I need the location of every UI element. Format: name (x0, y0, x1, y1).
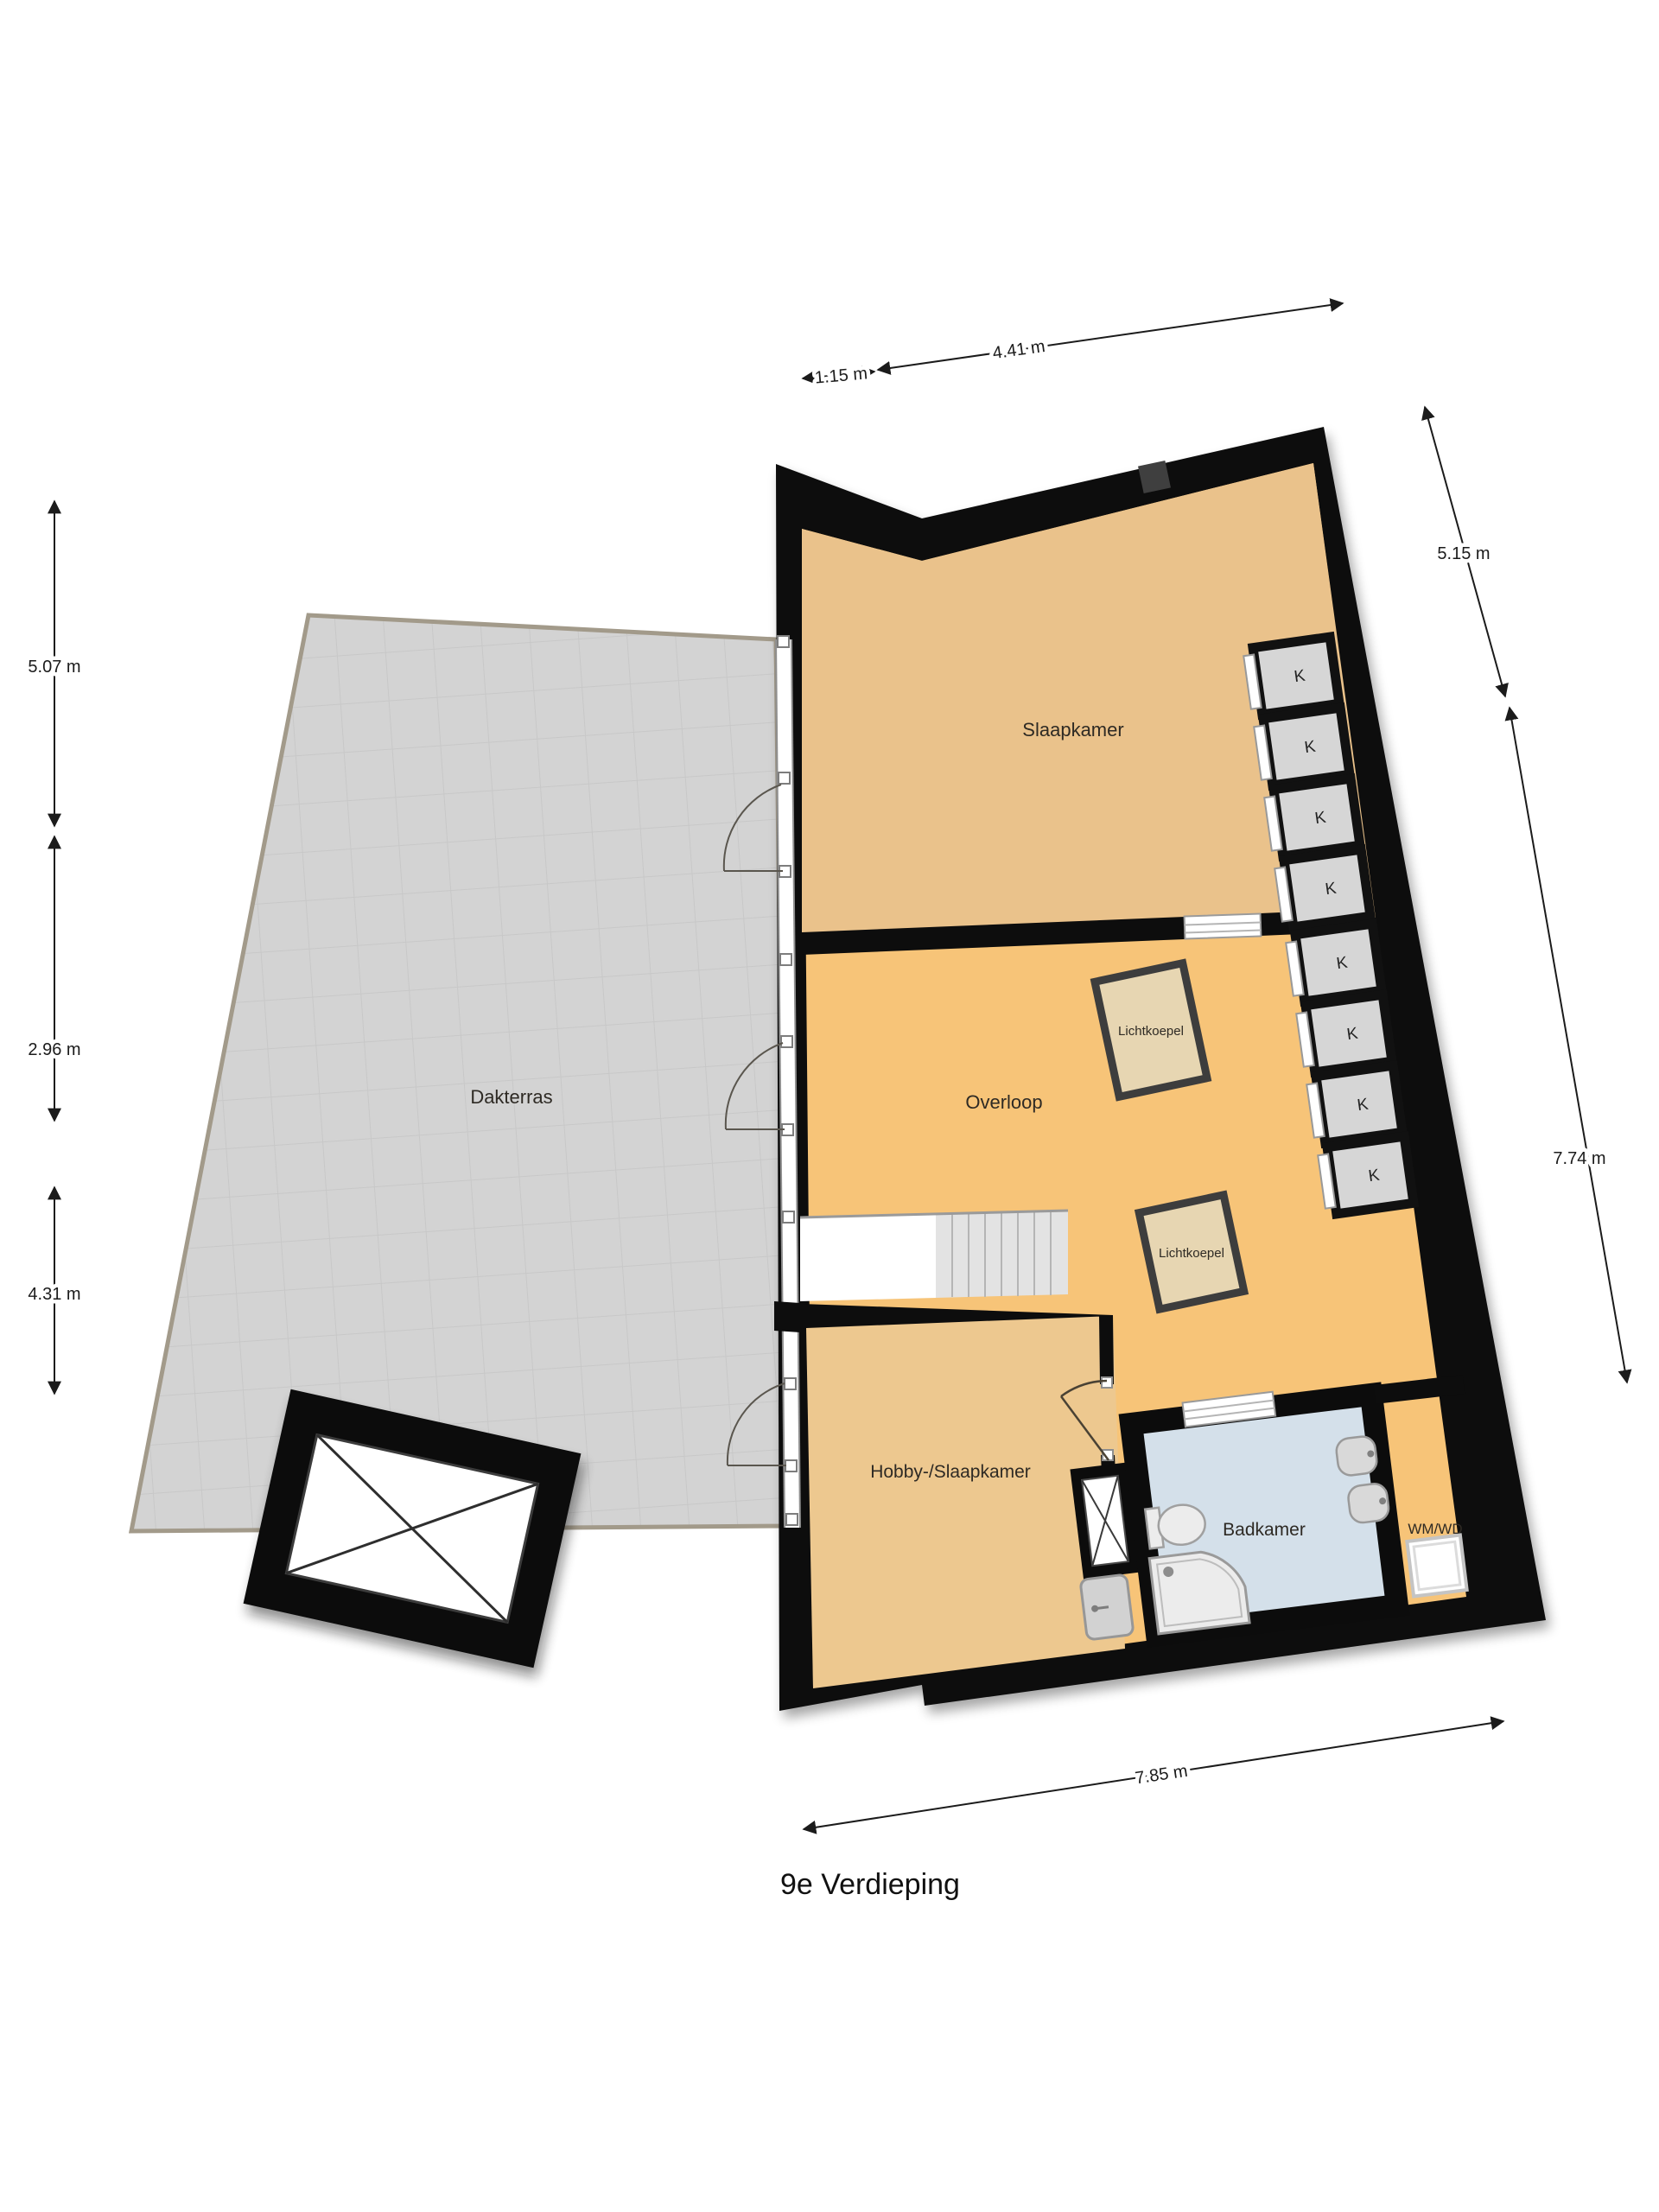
closet: K (1243, 637, 1339, 715)
washer-label: WM/WD (1408, 1521, 1462, 1537)
skylight-label: Lichtkoepel (1118, 1024, 1184, 1039)
closet: K (1263, 779, 1360, 857)
page-title: 9e Verdieping (780, 1868, 960, 1901)
closet: K (1253, 708, 1350, 786)
bathroom-sink (1335, 1435, 1378, 1477)
sliding-door-bedroom (1185, 913, 1262, 938)
washer-appliance (1407, 1535, 1466, 1596)
dim-left-lower: 4.31 m (28, 1285, 80, 1304)
dim-right-upper: 5.15 m (1437, 544, 1490, 563)
dim-top-left: 1.15 m (814, 364, 868, 387)
closet: K (1306, 1065, 1402, 1144)
closet: K (1295, 995, 1392, 1073)
hobby-sink (1080, 1574, 1134, 1640)
terrace-label: Dakterras (470, 1086, 552, 1108)
bathroom-label: Badkamer (1223, 1520, 1306, 1540)
bedroom-label: Slaapkamer (1022, 719, 1123, 741)
bathroom-sink (1347, 1483, 1390, 1524)
dim-right-lower: 7.74 m (1553, 1149, 1605, 1168)
column-nub (1138, 461, 1171, 493)
hobby-label: Hobby-/Slaapkamer (870, 1462, 1031, 1482)
bathroom (1129, 1379, 1401, 1635)
skylight-label: Lichtkoepel (1159, 1246, 1224, 1261)
closet: K (1274, 849, 1370, 928)
dim-bottom: 7.85 m (1134, 1762, 1189, 1789)
floor-plan-svg: Dakterras (0, 0, 1659, 2212)
dim-left-upper: 5.07 m (28, 658, 80, 677)
dim-top-right: 4.41 m (991, 337, 1046, 363)
closet: K (1285, 924, 1382, 1002)
dim-left-middle: 2.96 m (28, 1040, 80, 1059)
closet: K (1317, 1136, 1414, 1215)
landing-label: Overloop (965, 1091, 1042, 1113)
floorplan-page: Dakterras (0, 0, 1659, 2212)
roof-terrace (131, 615, 786, 1531)
